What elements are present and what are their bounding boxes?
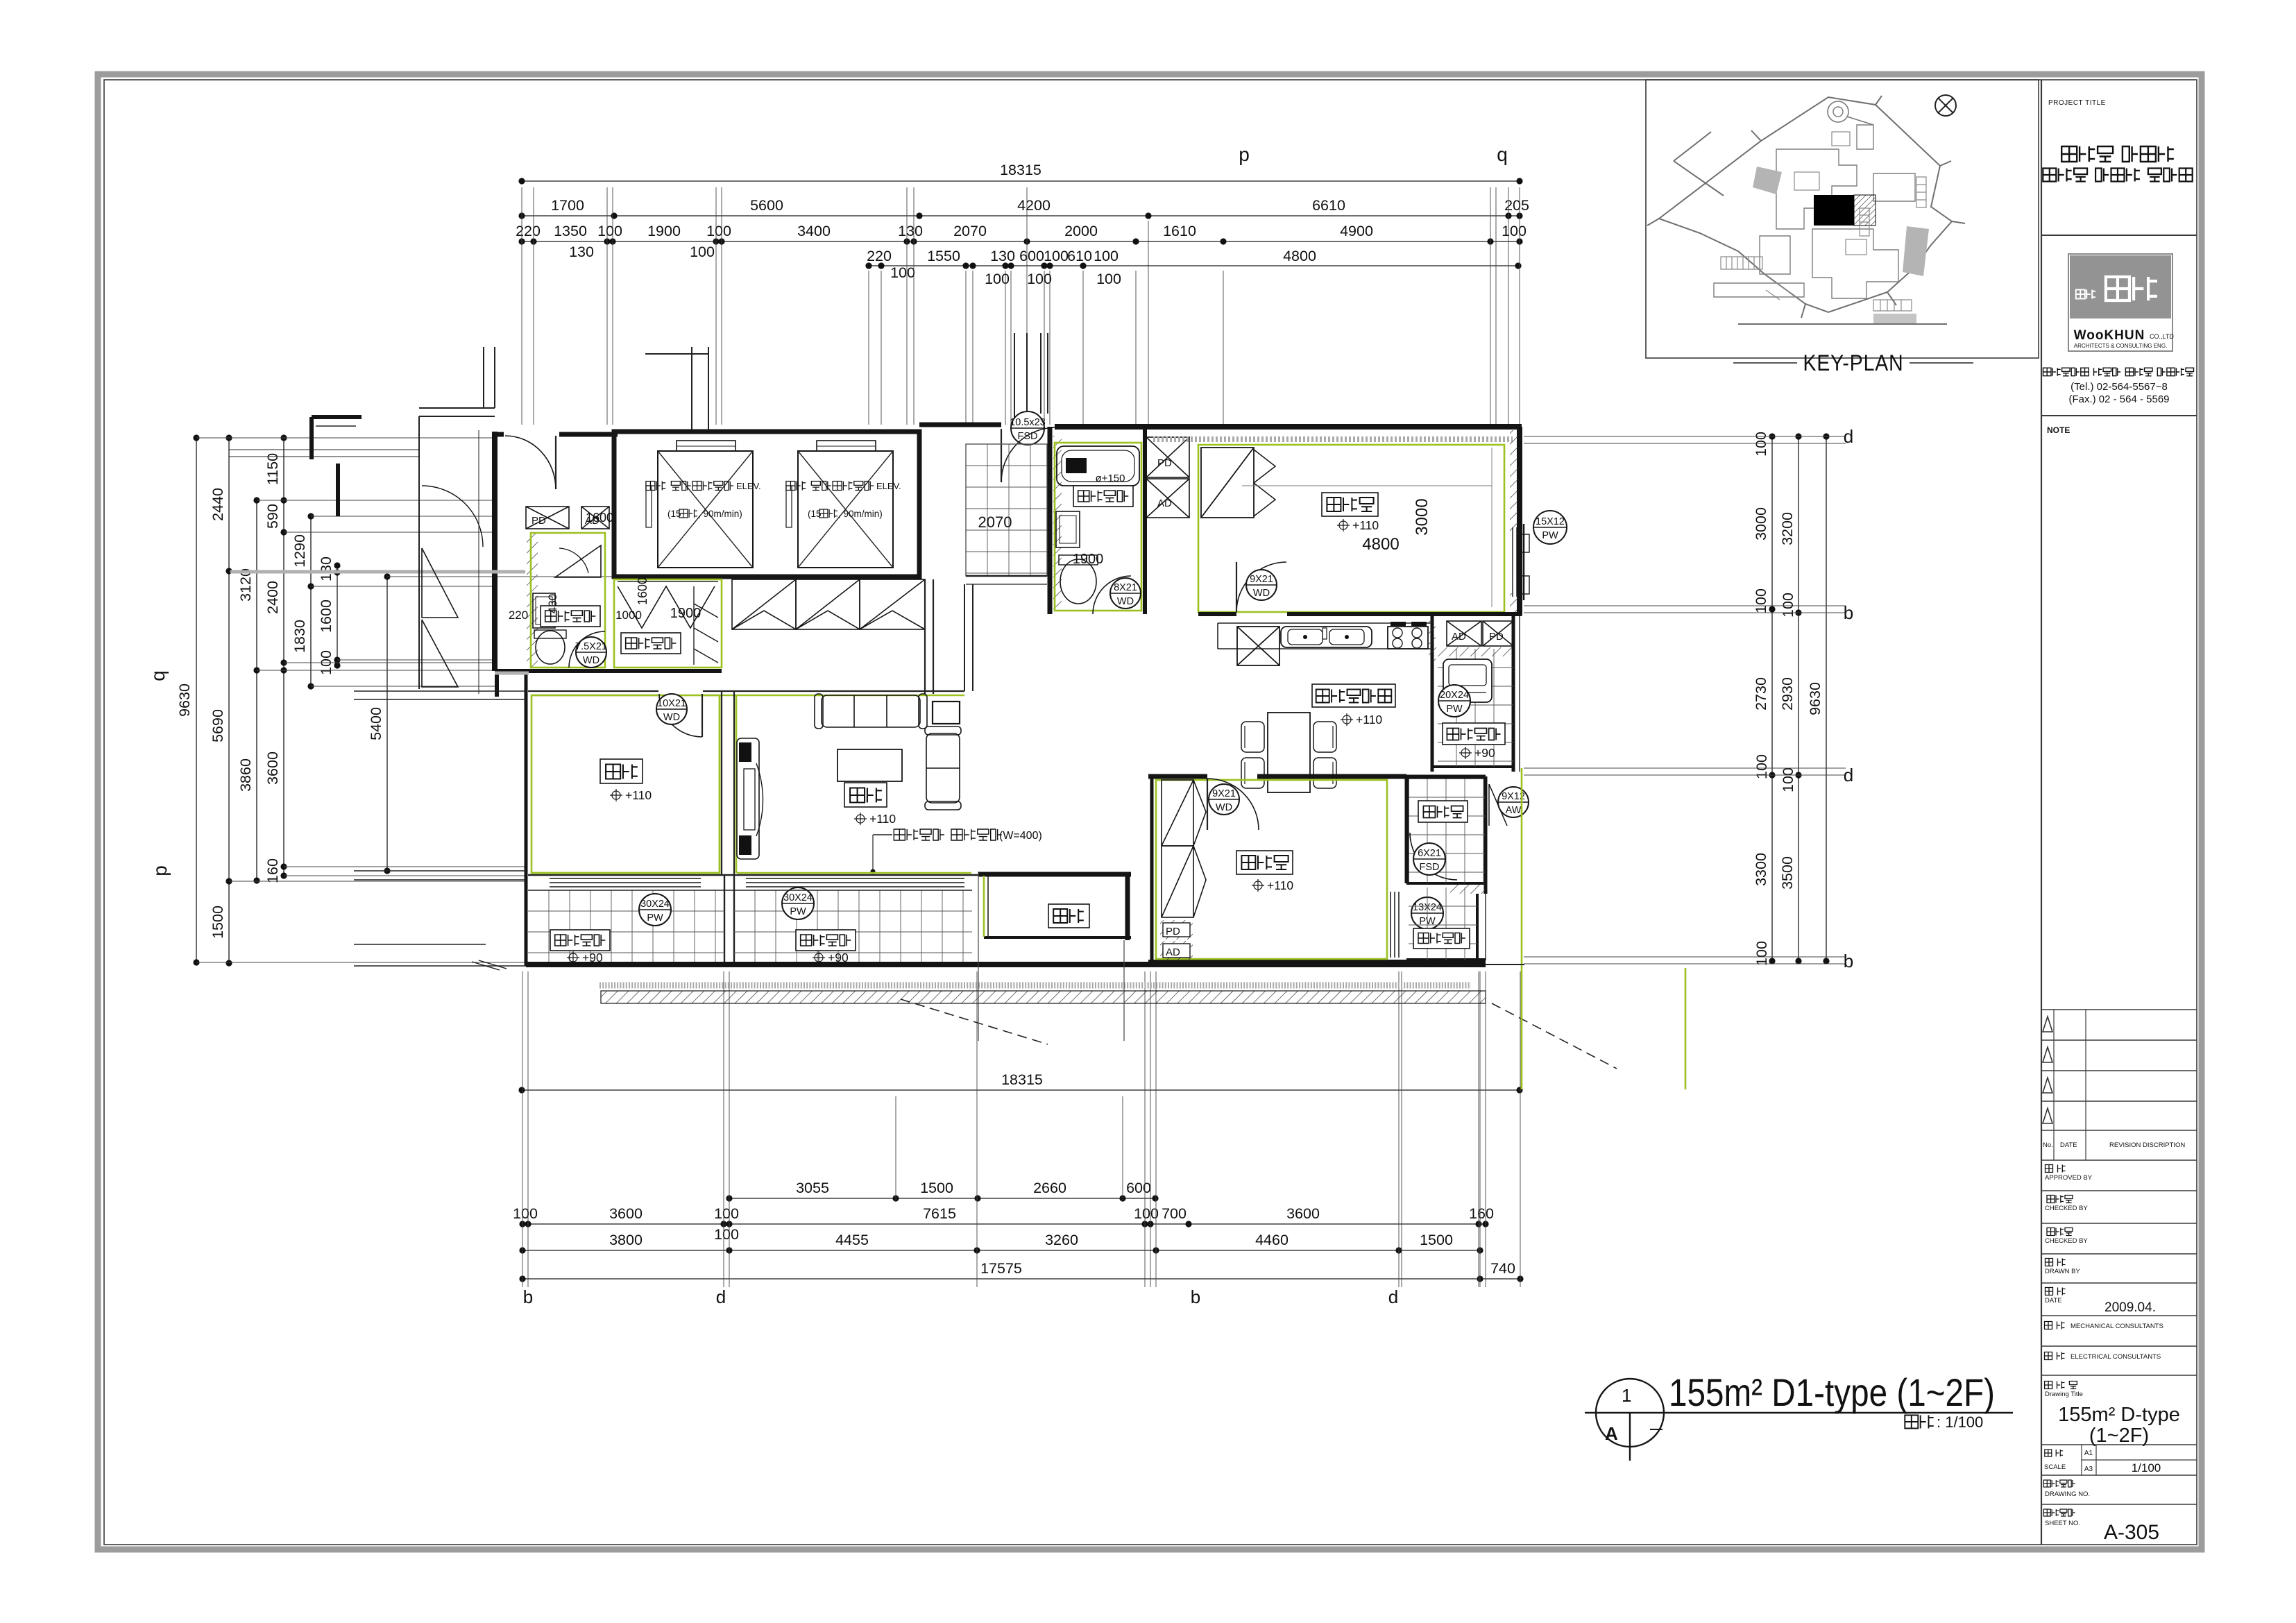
svg-text:DRAWN BY: DRAWN BY [2045, 1268, 2081, 1275]
svg-text:b: b [523, 1286, 533, 1307]
svg-text:2440: 2440 [210, 488, 226, 521]
svg-text:20X24: 20X24 [1440, 690, 1469, 701]
svg-text:PW: PW [790, 906, 806, 917]
svg-text:1900: 1900 [1073, 552, 1104, 567]
svg-text:4800: 4800 [1283, 248, 1316, 264]
svg-text:+110: +110 [1352, 518, 1379, 532]
svg-text:2400: 2400 [264, 581, 281, 614]
svg-text:600: 600 [1019, 248, 1044, 264]
svg-text:SHEET NO.: SHEET NO. [2045, 1520, 2080, 1527]
svg-text:30X24: 30X24 [640, 899, 670, 910]
svg-text:10.5x23: 10.5x23 [1010, 417, 1046, 428]
svg-text:100: 100 [1044, 248, 1069, 264]
svg-text:PW: PW [1542, 530, 1558, 541]
svg-text:3000: 3000 [1753, 507, 1769, 541]
svg-text:A: A [1605, 1423, 1618, 1444]
svg-text:1290: 1290 [291, 534, 308, 568]
svg-text:d: d [1388, 1286, 1398, 1307]
svg-text:Drawing Title: Drawing Title [2045, 1391, 2083, 1398]
svg-text:2730: 2730 [1753, 677, 1769, 711]
svg-text:+110: +110 [1267, 878, 1293, 892]
svg-text:ELEV.: ELEV. [736, 481, 761, 491]
svg-text:1610: 1610 [1163, 223, 1196, 239]
svg-text:FSD: FSD [1420, 862, 1440, 873]
svg-text:2070: 2070 [953, 223, 987, 239]
svg-text:100: 100 [690, 244, 715, 260]
svg-text:AD: AD [1166, 946, 1180, 958]
svg-text:(1~2F): (1~2F) [2089, 1425, 2149, 1447]
svg-text:10X21: 10X21 [657, 698, 686, 709]
svg-text:2000: 2000 [1064, 223, 1098, 239]
svg-text:WD: WD [1117, 596, 1134, 607]
svg-text:100: 100 [1502, 223, 1527, 239]
svg-text:+90: +90 [1474, 746, 1495, 760]
svg-text:4455: 4455 [835, 1232, 869, 1248]
svg-text:b: b [1191, 1286, 1200, 1307]
svg-text:d: d [1844, 426, 1853, 447]
svg-text:100: 100 [1096, 271, 1121, 287]
svg-text:PROJECT TITLE: PROJECT TITLE [2048, 99, 2106, 107]
svg-text:100: 100 [714, 1205, 739, 1222]
svg-text:CHECKED BY: CHECKED BY [2045, 1237, 2088, 1245]
svg-text:740: 740 [1490, 1260, 1515, 1277]
svg-text:p: p [149, 865, 171, 876]
svg-text:130: 130 [318, 556, 334, 581]
svg-text:PD: PD [1489, 631, 1504, 643]
svg-text:3600: 3600 [1286, 1205, 1320, 1222]
svg-text:2070: 2070 [978, 513, 1012, 531]
svg-text:1500: 1500 [1420, 1232, 1453, 1248]
svg-text:600: 600 [1126, 1180, 1151, 1196]
svg-text:100: 100 [1753, 432, 1769, 457]
svg-text:+110: +110 [1356, 713, 1382, 726]
svg-text:DRAWING NO.: DRAWING NO. [2045, 1490, 2090, 1498]
svg-text:5400: 5400 [368, 707, 384, 740]
svg-text:100: 100 [1780, 767, 1796, 792]
svg-text:1000: 1000 [615, 609, 642, 622]
svg-text:No.: No. [2043, 1141, 2053, 1149]
svg-text:PW: PW [1446, 704, 1463, 715]
svg-text:WD: WD [663, 712, 680, 723]
svg-text:430: 430 [546, 594, 559, 613]
svg-text:q: q [147, 670, 169, 681]
svg-text:, 90m/min): , 90m/min) [698, 509, 742, 519]
svg-text:6610: 6610 [1312, 197, 1345, 214]
svg-text:1500: 1500 [920, 1180, 953, 1196]
svg-text:4460: 4460 [1255, 1232, 1289, 1248]
svg-text:9630: 9630 [176, 683, 193, 717]
svg-text:5690: 5690 [210, 709, 226, 742]
svg-text:1150: 1150 [264, 453, 281, 485]
svg-text:100: 100 [1134, 1205, 1159, 1222]
svg-text:ELECTRICAL CONSULTANTS: ELECTRICAL CONSULTANTS [2070, 1353, 2161, 1361]
svg-text:100: 100 [1780, 593, 1796, 618]
svg-text:17575: 17575 [980, 1260, 1022, 1277]
svg-text:: 1/100: : 1/100 [1937, 1413, 1983, 1431]
svg-text:4200: 4200 [1017, 197, 1051, 214]
svg-text:8X21: 8X21 [1114, 582, 1137, 593]
svg-text:AD: AD [1157, 498, 1172, 509]
svg-text:1/100: 1/100 [2132, 1461, 2161, 1475]
svg-text:30X24: 30X24 [783, 892, 813, 903]
svg-text:130: 130 [990, 248, 1015, 264]
svg-text:100: 100 [714, 1226, 739, 1243]
svg-text:CHECKED BY: CHECKED BY [2045, 1205, 2088, 1212]
svg-text:WD: WD [1253, 588, 1270, 599]
svg-text:100: 100 [513, 1205, 538, 1222]
svg-text:4800: 4800 [1362, 535, 1399, 554]
svg-text:3860: 3860 [237, 758, 254, 792]
svg-text:100: 100 [985, 271, 1010, 287]
svg-text:q: q [1497, 144, 1508, 165]
svg-text:1550: 1550 [927, 248, 960, 264]
svg-text:1830: 1830 [291, 620, 308, 653]
svg-text:MECHANICAL CONSULTANTS: MECHANICAL CONSULTANTS [2070, 1323, 2163, 1330]
svg-text:2009.04.: 2009.04. [2104, 1300, 2156, 1315]
svg-text:1600: 1600 [318, 600, 334, 633]
svg-text:100: 100 [1753, 941, 1770, 966]
svg-text:WD: WD [583, 655, 599, 666]
svg-text:, 90m/min): , 90m/min) [838, 509, 883, 519]
svg-text:ø+150: ø+150 [1096, 473, 1125, 484]
svg-text:b: b [1844, 951, 1853, 971]
svg-text:1600: 1600 [636, 577, 649, 605]
svg-text:3600: 3600 [264, 751, 281, 785]
svg-text:3600: 3600 [609, 1205, 643, 1222]
svg-text:PW: PW [647, 912, 663, 924]
svg-text:d: d [716, 1286, 726, 1307]
svg-text:9X21: 9X21 [1250, 574, 1273, 585]
svg-text:100: 100 [1753, 754, 1770, 779]
svg-text:700: 700 [1162, 1205, 1187, 1222]
svg-text:b: b [1844, 602, 1853, 623]
svg-text:NOTE: NOTE [2047, 425, 2070, 435]
svg-text:3055: 3055 [796, 1180, 829, 1196]
svg-text:PD: PD [1157, 457, 1172, 469]
svg-text:160: 160 [1469, 1205, 1494, 1222]
svg-text:A3: A3 [2084, 1465, 2093, 1473]
svg-text:(Fax.) 02 - 564 - 5569: (Fax.) 02 - 564 - 5569 [2068, 393, 2169, 405]
svg-text:100: 100 [1094, 248, 1119, 264]
svg-text:18315: 18315 [1000, 162, 1041, 178]
svg-text:3000: 3000 [1413, 498, 1431, 535]
svg-text:100: 100 [597, 223, 622, 239]
svg-text:3300: 3300 [1753, 853, 1769, 886]
svg-text:3800: 3800 [609, 1232, 643, 1248]
svg-text:1: 1 [1622, 1385, 1631, 1406]
svg-text:KEY-PLAN: KEY-PLAN [1803, 350, 1904, 375]
svg-text:WooKHUN: WooKHUN [2074, 328, 2145, 343]
svg-text:205: 205 [1504, 197, 1529, 214]
svg-text:PD: PD [532, 515, 546, 527]
svg-text:1350: 1350 [554, 223, 587, 239]
svg-text:(W=400): (W=400) [999, 830, 1042, 842]
svg-text:7.5X21: 7.5X21 [575, 641, 607, 652]
svg-text:4900: 4900 [1340, 223, 1373, 239]
svg-text:160: 160 [264, 858, 281, 883]
svg-text:d: d [1844, 765, 1853, 785]
svg-text:1600: 1600 [586, 511, 613, 525]
svg-text:3400: 3400 [797, 223, 831, 239]
svg-text:100: 100 [890, 264, 915, 281]
svg-text:610: 610 [1067, 248, 1092, 264]
svg-text:SCALE: SCALE [2044, 1463, 2066, 1471]
svg-text:APPROVED BY: APPROVED BY [2045, 1174, 2093, 1182]
svg-text:DATE: DATE [2045, 1297, 2062, 1305]
svg-text:220: 220 [867, 248, 892, 264]
svg-text:REVISION DISCRIPTION: REVISION DISCRIPTION [2109, 1141, 2185, 1149]
svg-text:AW: AW [1506, 805, 1522, 816]
svg-text:6X21: 6X21 [1418, 848, 1441, 859]
svg-text:130: 130 [898, 223, 923, 239]
svg-text:100: 100 [1027, 271, 1052, 287]
svg-text:155m² D1-type (1~2F): 155m² D1-type (1~2F) [1669, 1370, 1995, 1414]
svg-text:220: 220 [509, 609, 528, 622]
svg-text:1500: 1500 [210, 906, 226, 939]
svg-text:220: 220 [516, 223, 541, 239]
svg-text:AD: AD [1452, 631, 1466, 643]
svg-text:18315: 18315 [1001, 1071, 1043, 1088]
svg-text:ELEV.: ELEV. [876, 481, 901, 491]
svg-text:7615: 7615 [923, 1205, 956, 1222]
svg-text:+110: +110 [869, 812, 896, 826]
svg-text:100: 100 [706, 223, 731, 239]
svg-text:A-305: A-305 [2104, 1521, 2159, 1544]
svg-text:2930: 2930 [1779, 677, 1796, 711]
svg-text:DATE: DATE [2060, 1141, 2077, 1149]
svg-text:CO.,LTD: CO.,LTD [2150, 333, 2174, 340]
svg-text:155m² D-type: 155m² D-type [2058, 1404, 2180, 1426]
svg-text:WD: WD [1216, 802, 1232, 813]
svg-text:100: 100 [1753, 588, 1769, 613]
svg-text:9X21: 9X21 [1212, 788, 1236, 799]
svg-text:5600: 5600 [750, 197, 783, 214]
svg-text:(Tel.) 02-564-5567~8: (Tel.) 02-564-5567~8 [2070, 381, 2168, 393]
svg-text:590: 590 [264, 504, 281, 529]
svg-text:3260: 3260 [1045, 1232, 1078, 1248]
svg-text:9630: 9630 [1807, 682, 1823, 715]
svg-text:1900: 1900 [670, 606, 701, 621]
svg-text:1700: 1700 [551, 197, 584, 214]
svg-text:130: 130 [569, 244, 594, 260]
svg-text:A1: A1 [2084, 1450, 2093, 1457]
svg-text:p: p [1239, 144, 1250, 165]
svg-text:3500: 3500 [1779, 856, 1796, 890]
svg-text:+110: +110 [625, 788, 652, 802]
svg-text:2660: 2660 [1033, 1180, 1066, 1196]
svg-text:1900: 1900 [647, 223, 681, 239]
svg-text:ARCHITECTS & CONSULTING ENG.: ARCHITECTS & CONSULTING ENG. [2074, 343, 2168, 349]
svg-text:15X12: 15X12 [1536, 516, 1565, 527]
svg-text:PD: PD [1166, 926, 1180, 937]
svg-text:3200: 3200 [1779, 512, 1796, 545]
